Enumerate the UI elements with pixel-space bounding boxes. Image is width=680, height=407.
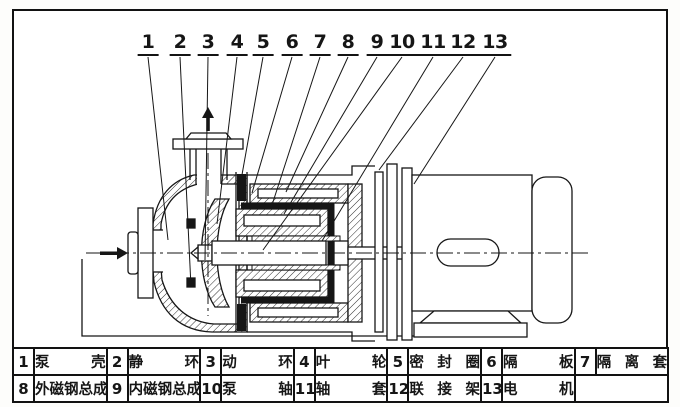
callout-8: 8 [338,31,359,56]
callout-4: 4 [227,31,248,56]
motor-base [414,323,527,337]
part-number-cell: 7 [575,348,596,375]
callout-5: 5 [253,31,274,56]
leader-line-8 [286,57,348,192]
callout-7: 7 [310,31,331,56]
callout-13: 13 [478,31,511,56]
part-name-cell: 密封圈 [408,348,481,375]
part-number-cell: 2 [107,348,128,375]
part-name-cell: 泵轴 [221,375,294,402]
leader-line-12 [379,57,463,170]
empty-cell [575,375,669,402]
callout-6: 6 [282,31,303,56]
part-name-cell: 内磁钢总成 [128,375,201,402]
part-number-cell: 13 [481,375,502,402]
part-number-cell: 4 [294,348,315,375]
part-number-cell: 6 [481,348,502,375]
callout-2: 2 [170,31,191,56]
callout-12: 12 [446,31,479,56]
outlet-flow-arrow-icon [202,107,214,131]
motor [402,168,572,340]
callout-9: 9 [367,31,388,56]
part-name-cell: 泵壳 [34,348,107,375]
seal-gasket-bottom [237,304,246,331]
part-name-cell: 静环 [128,348,201,375]
part-number-cell: 12 [387,375,408,402]
part-name-cell: 轴套 [315,375,388,402]
pump-diagram-page: { "colors": { "ink": "#161616", "paper":… [0,0,680,407]
part-number-cell: 8 [13,375,34,402]
part-name-cell: 动环 [221,348,294,375]
part-number-cell: 11 [294,375,315,402]
callout-3: 3 [198,31,219,56]
table-row: 1 泵壳 2 静环 3 动环 4 叶轮 5 密封圈 6 隔板 7 隔离套 [13,348,668,375]
motor-feet [420,311,521,323]
callout-10: 10 [385,31,418,56]
part-number-cell: 5 [387,348,408,375]
part-name-cell: 隔板 [502,348,575,375]
part-number-cell: 9 [107,375,128,402]
callout-11: 11 [416,31,449,56]
parts-legend-table: 1 泵壳 2 静环 3 动环 4 叶轮 5 密封圈 6 隔板 7 隔离套 8 外… [12,347,669,403]
part-number-cell: 1 [13,348,34,375]
leader-line-13 [414,57,495,184]
leader-line-7 [272,57,320,205]
inlet-flow-arrow-icon [100,247,128,260]
part-number-cell: 10 [200,375,221,402]
table-row: 8 外磁钢总成 9 内磁钢总成 10 泵轴 11 轴套 12 联接架 13 电机 [13,375,668,402]
callout-1: 1 [138,31,159,56]
part-number-cell: 3 [200,348,221,375]
part-name-cell: 外磁钢总成 [34,375,107,402]
part-name-cell: 隔离套 [596,348,669,375]
part-name-cell: 叶轮 [315,348,388,375]
leader-line-6 [252,57,292,193]
part-name-cell: 联接架 [408,375,481,402]
part-name-cell: 电机 [502,375,575,402]
